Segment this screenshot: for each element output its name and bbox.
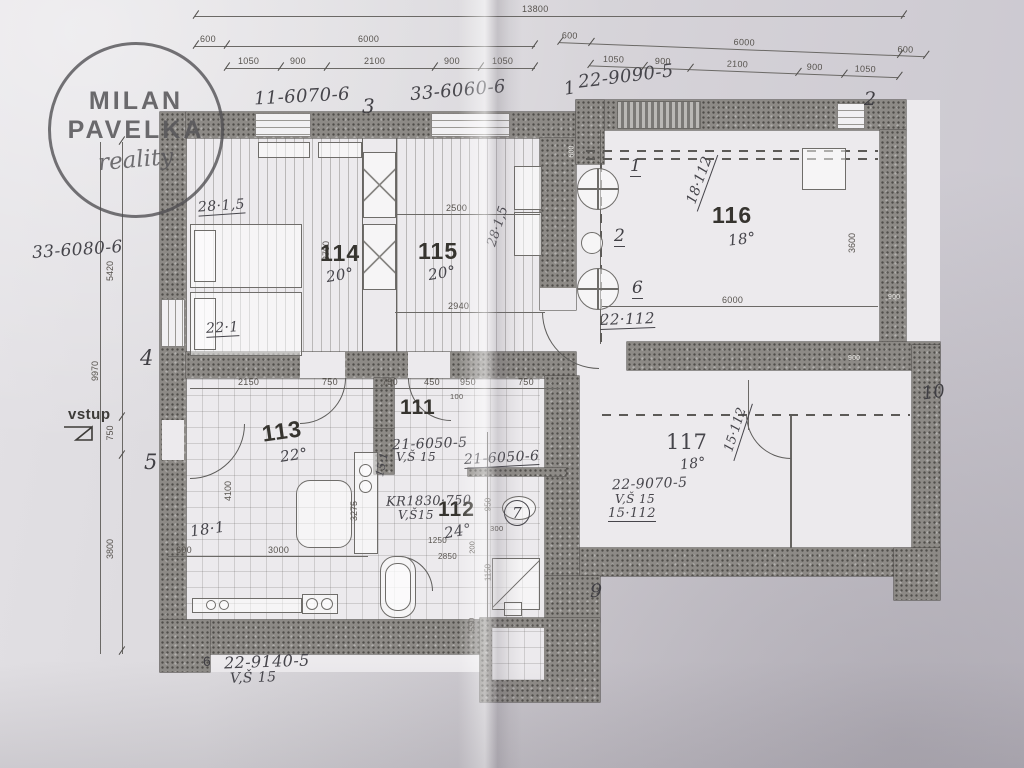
sink-icon [206,600,216,610]
dim-line [602,306,878,307]
toilet-icon [504,602,522,616]
dim-tick [532,40,539,49]
entrance-door-gap [162,420,184,460]
dim-label: 600 [562,30,578,41]
dim-label: 6000 [358,34,379,44]
dim-line [122,142,123,654]
room-label-115: 115 [418,238,458,265]
room-temp-117: 18° [679,455,707,474]
dim-label: 600 [176,545,192,555]
dim-line [395,312,545,313]
wall-right-117 [912,345,940,560]
room-temp-116: 18° [727,228,757,249]
wall-corner-br [894,548,940,600]
room-label-113: 113 [260,415,303,447]
dim-label: 2500 [446,203,467,213]
dim-label: 900 [807,62,823,73]
dim-label: 600 [200,34,216,44]
radiator-icon [577,168,619,210]
dim-label: 750 [382,377,398,387]
dim-tick [588,38,595,47]
dim-label: 3275 [349,481,359,541]
dim-tick [324,62,331,71]
dim-label: 3000 [268,545,289,555]
door-gap-fold [540,288,576,310]
window-left-icon [162,300,184,346]
room-label-117: 117 [666,430,707,454]
wall-center-right [545,376,579,576]
marker-7-circle: 7 [504,500,530,526]
shaft-hatch-icon [618,102,700,128]
radiator-icon [577,268,619,310]
dim-tick [224,62,231,71]
marker-9: 9 [590,580,602,602]
annotation-code: V,Š 15 [615,492,655,506]
annotation-code: 11-6070-6 [254,84,351,110]
dim-label: 600 [569,145,576,157]
pillow-icon [194,230,216,282]
annotation-code: V,Š 15 [396,450,436,464]
dim-tick [193,10,200,19]
marker-7: 7 [512,504,522,522]
dim-label: 1050 [238,56,259,66]
wall-bottom-117 [570,548,920,576]
dim-label: 13800 [522,4,549,14]
stove-burner-icon [306,598,318,610]
dim-label: 450 [424,377,440,387]
wardrobe-icon [258,142,310,158]
window-115-icon [432,114,509,136]
floor-plan-sheet: 13800 600 6000 1050 900 2100 900 1050 60… [0,0,1024,768]
annotation-code: 33-6060-6 [409,76,506,105]
cupboard-icon [802,148,846,190]
dim-label: 750 [322,377,338,387]
wardrobe-icon [318,142,362,158]
marker-3: 3 [362,94,375,118]
room-label-111: 111 [400,396,436,420]
annotation-code: 15·112 [608,506,656,522]
dim-line [195,16,905,17]
sink-icon [219,600,229,610]
stove-burner-icon [321,598,333,610]
dim-label: 1150 [484,543,493,603]
dim-label: 4100 [223,461,233,521]
wall-right-116 [880,130,906,345]
dim-label: 2850 [438,552,457,561]
dim-label: 950 [484,475,493,535]
dim-label: 3800 [105,519,115,579]
dim-tick [687,63,694,72]
dim-label: 2100 [727,59,749,70]
dim-label: 900 [290,56,306,66]
radiator-ref-6: 6 [632,278,643,299]
annotation-code: 22·112 [600,309,656,330]
wall-top-left-wing [186,112,576,138]
dim-label: 100 [450,392,463,401]
radiator-icon [581,232,603,254]
logo-name-line1: MILAN [89,87,183,116]
entrance-arrow-icon [62,424,96,444]
wall-mid-horizontal [627,342,940,370]
dim-tick [532,62,539,71]
marker-2: 2 [864,88,876,110]
dim-tick [841,69,848,78]
radiator-ref-2: 2 [614,226,625,247]
marker-6-printed: 6 [203,653,211,669]
bathtub-inner-icon [385,563,411,611]
dim-label: 600 [897,44,913,55]
marker-5: 5 [144,450,157,474]
annotation-code: 22-9070-5 [612,475,688,494]
dim-tick [193,40,200,49]
closet-icon [363,224,396,290]
door-gap-115 [408,352,450,378]
closet-icon [363,152,396,218]
dim-label: 9970 [90,341,100,401]
dim-label: 6000 [722,295,743,305]
annotation-code: V,Š 15 [230,669,277,687]
closet-icon [514,212,542,256]
dim-label: 1050 [492,56,513,66]
dim-label: 950 [460,377,476,387]
dim-label: 900 [444,56,460,66]
table-icon [296,480,352,548]
entrance-label: vstup [68,406,111,423]
logo-name-line2: PAVELKA [68,116,205,145]
dim-tick [432,62,439,71]
dim-label: 750 [518,377,534,387]
logo-script: reality [97,144,174,176]
floor-stub-room [492,628,544,680]
marker-4: 4 [140,346,153,370]
room-label-114: 114 [320,240,360,267]
radiator-ref-1: 1 [630,156,641,177]
dim-line [195,46,535,47]
annotation-code: 28·1,5 [197,196,245,216]
dim-label: 6000 [733,37,755,48]
plan-base-117-wing [562,342,940,576]
room-temp-113: 22° [279,444,309,466]
dim-line [168,556,368,557]
dim-tick [478,62,485,71]
dim-label: 1050 [603,54,625,65]
dim-label: 3600 [847,213,857,273]
dim-tick [278,62,285,71]
agency-logo: MILAN PAVELKA reality [48,42,224,218]
dim-tick [587,60,594,69]
wall-fold-center [540,138,576,310]
annotation-code: 22·1 [206,319,240,338]
dim-tick [923,51,930,60]
dim-line [395,214,540,215]
dim-tick [896,71,903,80]
dim-line [190,388,560,389]
closet-icon [514,166,542,210]
dim-line [100,142,101,654]
dim-label: 900 [888,294,900,301]
dim-label: 2940 [448,301,469,311]
dim-tick [224,40,231,49]
door-gap-114 [300,352,345,378]
dim-label: 550 [468,595,477,655]
marker-10: 10 [921,381,947,405]
window-116-small-icon [838,104,864,128]
window-114-icon [256,114,310,136]
dim-label: 900 [848,355,860,362]
dim-label: 1050 [855,64,877,75]
dim-label: 2150 [238,377,259,387]
dim-line [226,68,535,69]
dim-tick [795,68,802,77]
dim-label: 2100 [364,56,385,66]
room-label-116: 116 [712,202,752,229]
dim-tick [901,10,908,19]
partition-114-115-b [396,138,397,352]
annotation-code: V,Š15 [398,508,434,522]
sink-icon [359,464,372,477]
wall-bottom-left-wing [186,620,490,654]
